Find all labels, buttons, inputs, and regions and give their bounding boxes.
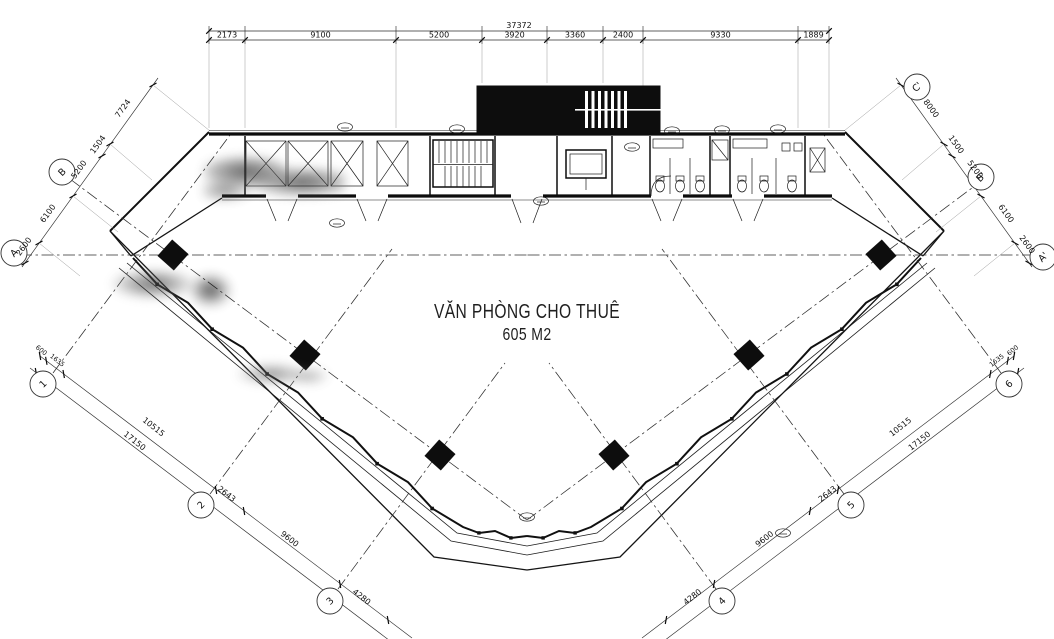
room-title: VĂN PHÒNG CHO THUÊ: [434, 299, 620, 322]
stair-block: [477, 86, 665, 133]
dim-seg: 3920: [504, 31, 524, 40]
dim-seg: 9330: [710, 31, 730, 40]
left-edge-dim-labels: 7724 1504 5200 6100 2600: [14, 98, 132, 258]
svg-text:9600: 9600: [279, 529, 301, 549]
duct-shaft: [712, 140, 728, 160]
svg-text:4280: 4280: [351, 587, 373, 607]
svg-text:7724: 7724: [113, 98, 132, 120]
bottom-left-dim-labels: 600 1635 10515 17150 2643 9600 4280: [34, 343, 372, 606]
outer-boundary: [110, 231, 527, 570]
partitions: [245, 136, 805, 196]
tip-cap: [110, 231, 131, 256]
floor-plan-sheet: 37372 2173 9100 5200 3920 3360 2400 9330…: [0, 0, 1054, 639]
end-room: [810, 148, 825, 172]
svg-text:600: 600: [1005, 343, 1020, 357]
edge-dim-line: [22, 78, 158, 267]
meeting-room: [566, 150, 606, 190]
wc-room-1: [651, 139, 705, 196]
dim-seg: 9100: [310, 31, 330, 40]
svg-text:2643: 2643: [817, 484, 839, 504]
svg-text:2600: 2600: [14, 236, 33, 258]
right-wing-geometry: [527, 78, 1034, 639]
elevator-shafts: [246, 141, 408, 186]
bottom-dim-outer: [30, 368, 402, 639]
right-edge-dim-labels: 8000 1500 5200 6100 2600: [921, 98, 1036, 256]
svg-text:17150: 17150: [907, 430, 933, 453]
core-band: [209, 86, 845, 223]
room-label: VĂN PHÒNG CHO THUÊ 605 M2: [434, 299, 620, 344]
stair-room: [433, 140, 493, 187]
dim-seg: 5200: [429, 31, 449, 40]
svg-text:9600: 9600: [754, 529, 776, 549]
svg-text:5200: 5200: [69, 159, 88, 181]
svg-text:1635: 1635: [988, 352, 1006, 368]
dim-seg: 3360: [565, 31, 585, 40]
svg-text:600: 600: [34, 343, 49, 357]
dim-total: 37372: [506, 21, 531, 30]
axis-3: [338, 363, 505, 589]
svg-text:17150: 17150: [122, 430, 148, 453]
bottom-right-dim-labels: 600 1635 10515 17150 2643 9600 4280: [682, 343, 1020, 606]
svg-text:2643: 2643: [216, 484, 238, 504]
columns: [157, 239, 455, 470]
dim-seg: 2400: [613, 31, 633, 40]
dim-seg: 2173: [217, 31, 237, 40]
band-bottom-wall: [222, 196, 832, 200]
svg-text:4280: 4280: [682, 587, 704, 607]
svg-text:2600: 2600: [1017, 234, 1036, 256]
dim-seg: 1889: [803, 31, 823, 40]
annotation-tags: [330, 123, 791, 537]
floor-plan-drawing: 37372 2173 9100 5200 3920 3360 2400 9330…: [0, 0, 1054, 639]
svg-text:1635: 1635: [48, 352, 66, 368]
room-area: 605 M2: [502, 324, 551, 344]
wc-room-2: [733, 139, 802, 194]
svg-text:8000: 8000: [921, 98, 940, 120]
